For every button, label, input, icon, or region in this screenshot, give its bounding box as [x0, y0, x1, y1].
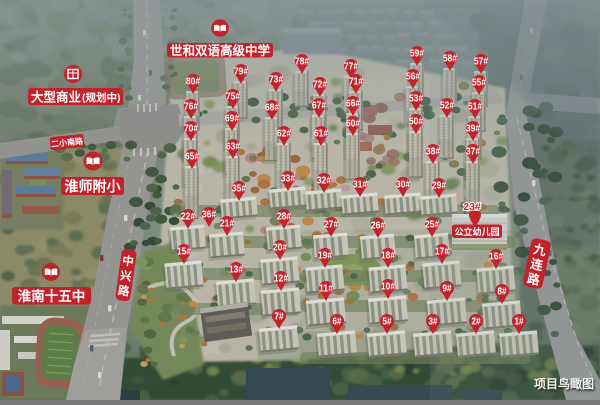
svg-text:19#: 19#: [318, 251, 333, 262]
svg-text:7#: 7#: [274, 312, 284, 323]
svg-text:1#: 1#: [514, 317, 524, 328]
svg-text:31#: 31#: [353, 180, 368, 191]
svg-text:大型商业: 大型商业: [31, 90, 82, 105]
svg-text:3#: 3#: [428, 317, 438, 328]
svg-text:项目鸟瞰图: 项目鸟瞰图: [534, 376, 594, 391]
svg-text:淮师附小: 淮师附小: [65, 179, 121, 195]
svg-text:61#: 61#: [314, 129, 329, 140]
svg-text:淮南十五中: 淮南十五中: [18, 288, 86, 304]
svg-text:60#: 60#: [346, 119, 361, 130]
svg-text:73#: 73#: [269, 75, 284, 86]
svg-text:70#: 70#: [184, 124, 199, 135]
svg-text:11#: 11#: [319, 284, 334, 295]
svg-text:65#: 65#: [185, 152, 200, 163]
svg-text:69#: 69#: [225, 114, 240, 125]
svg-text:79#: 79#: [234, 67, 249, 78]
svg-text:39#: 39#: [466, 124, 481, 135]
svg-text:18#: 18#: [381, 251, 396, 262]
svg-text:(规划中): (规划中): [82, 91, 121, 104]
svg-text:12#: 12#: [274, 274, 289, 285]
svg-text:77#: 77#: [344, 62, 359, 73]
svg-text:33#: 33#: [281, 174, 296, 185]
svg-text:22#: 22#: [181, 212, 196, 223]
svg-text:17#: 17#: [435, 247, 450, 258]
svg-text:76#: 76#: [184, 102, 199, 113]
svg-text:38#: 38#: [426, 147, 441, 158]
svg-text:55#: 55#: [472, 78, 487, 89]
svg-text:37#: 37#: [466, 147, 481, 158]
svg-text:66#: 66#: [346, 99, 361, 110]
svg-text:25#: 25#: [425, 220, 440, 231]
svg-text:27#: 27#: [324, 220, 339, 231]
svg-text:23#: 23#: [463, 201, 481, 213]
svg-text:20#: 20#: [273, 243, 288, 254]
svg-text:15#: 15#: [177, 247, 192, 258]
svg-text:16#: 16#: [489, 252, 504, 263]
svg-text:36#: 36#: [202, 210, 217, 221]
svg-text:68#: 68#: [265, 103, 280, 114]
svg-text:35#: 35#: [232, 184, 247, 195]
svg-text:世和双语高级中学: 世和双语高级中学: [170, 43, 271, 58]
svg-text:9#: 9#: [442, 284, 452, 295]
svg-text:51#: 51#: [468, 102, 483, 113]
svg-text:71#: 71#: [349, 77, 364, 88]
svg-text:59#: 59#: [410, 49, 425, 60]
svg-text:29#: 29#: [432, 181, 447, 192]
svg-text:30#: 30#: [396, 180, 411, 191]
svg-text:63#: 63#: [226, 142, 241, 153]
svg-text:13#: 13#: [229, 265, 244, 276]
svg-text:53#: 53#: [409, 94, 424, 105]
svg-text:72#: 72#: [313, 80, 328, 91]
svg-text:公立幼儿园: 公立幼儿园: [454, 226, 499, 237]
svg-text:10#: 10#: [381, 282, 396, 293]
svg-text:78#: 78#: [295, 57, 310, 68]
svg-text:8#: 8#: [497, 287, 507, 298]
svg-text:62#: 62#: [277, 129, 292, 140]
svg-text:57#: 57#: [474, 57, 489, 68]
svg-text:21#: 21#: [220, 219, 235, 230]
svg-text:32#: 32#: [317, 176, 332, 187]
svg-text:80#: 80#: [186, 77, 201, 88]
svg-text:67#: 67#: [312, 101, 327, 112]
svg-text:52#: 52#: [440, 101, 455, 112]
svg-text:28#: 28#: [277, 212, 292, 223]
svg-text:26#: 26#: [371, 221, 386, 232]
svg-text:50#: 50#: [409, 117, 424, 128]
svg-text:2#: 2#: [471, 317, 481, 328]
svg-text:58#: 58#: [443, 54, 458, 65]
svg-text:75#: 75#: [226, 92, 241, 103]
svg-text:5#: 5#: [382, 317, 392, 328]
svg-text:56#: 56#: [406, 72, 421, 83]
svg-text:6#: 6#: [332, 317, 342, 328]
